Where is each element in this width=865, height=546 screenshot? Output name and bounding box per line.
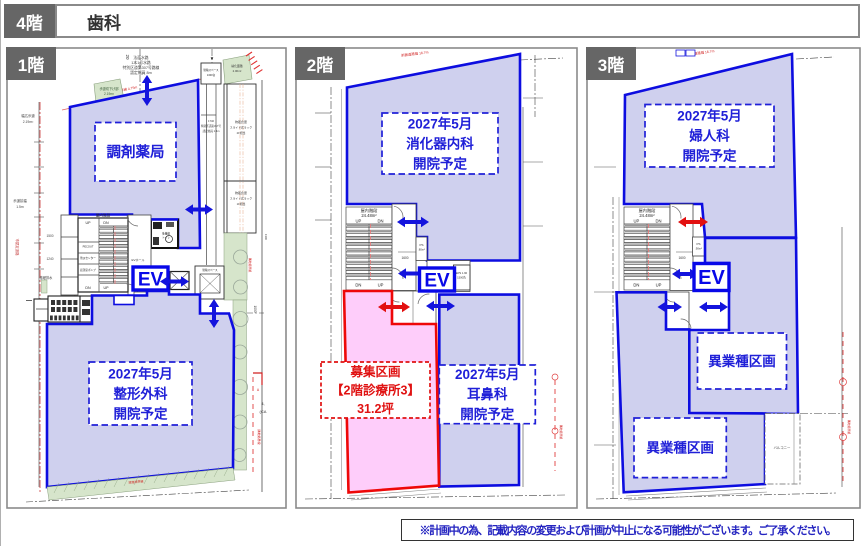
svg-text:調剤薬局: 調剤薬局	[107, 143, 165, 161]
svg-text:DN: DN	[655, 219, 661, 224]
svg-text:駐輪スペース: 駐輪スペース	[203, 68, 219, 72]
svg-text:法面水路: 法面水路	[133, 55, 148, 60]
svg-text:物販倉庫: 物販倉庫	[235, 190, 247, 195]
svg-text:1300台: 1300台	[207, 73, 216, 77]
svg-text:幅広歩道: 幅広歩道	[21, 113, 35, 118]
svg-text:UP: UP	[634, 219, 640, 224]
svg-text:2.19m²: 2.19m²	[23, 120, 34, 124]
svg-text:異業種区画: 異業種区画	[646, 440, 714, 456]
svg-text:EV: EV	[138, 269, 164, 290]
svg-text:隣地境界線: 隣地境界線	[559, 425, 564, 440]
svg-text:24.48m²: 24.48m²	[361, 213, 377, 218]
svg-text:UP: UP	[656, 283, 662, 288]
svg-text:防災センター: 防災センター	[80, 256, 96, 260]
svg-text:1300: 1300	[264, 234, 268, 241]
svg-text:歩道切下げ部: 歩道切下げ部	[99, 86, 119, 91]
svg-text:UP: UP	[86, 221, 92, 225]
svg-text:EVホール: EVホール	[131, 257, 144, 262]
svg-text:UP: UP	[104, 286, 110, 290]
svg-text:隣地境界線: 隣地境界線	[257, 429, 262, 444]
svg-text:スライド式ラック: スライド式ラック	[230, 126, 253, 130]
svg-text:UP: UP	[378, 283, 384, 288]
svg-text:1500: 1500	[46, 234, 53, 238]
svg-text:認定幅員 8m: 認定幅員 8m	[130, 70, 152, 75]
svg-text:▼: ▼	[210, 56, 214, 61]
svg-text:1500角: 1500角	[457, 276, 466, 280]
svg-text:DN: DN	[355, 283, 361, 288]
svg-text:2F相当: 2F相当	[237, 131, 246, 135]
svg-text:給湯室ポンプ: 給湯室ポンプ	[80, 268, 96, 272]
svg-text:1.5m: 1.5m	[16, 205, 24, 209]
svg-text:DN: DN	[85, 286, 91, 290]
svg-text:.80m²: .80m²	[418, 248, 425, 252]
svg-text:2027年5月整形外科開院予定: 2027年5月整形外科開院予定	[108, 365, 173, 421]
svg-text:4,: 4,	[261, 401, 264, 406]
svg-text:市認定道路: 市認定道路	[15, 239, 20, 257]
svg-text:1F相当: 1F相当	[237, 202, 246, 206]
svg-text:PECOUT: PECOUT	[83, 245, 94, 249]
svg-text:DN: DN	[377, 219, 383, 224]
svg-text:.90m²: .90m²	[695, 247, 702, 251]
svg-text:EPS 1.90: EPS 1.90	[456, 271, 468, 275]
svg-text:2027年5月消化器内科開院予定: 2027年5月消化器内科開院予定	[406, 115, 474, 171]
svg-text:異業種区画: 異業種区画	[708, 353, 776, 369]
svg-text:屋内階段: 屋内階段	[96, 213, 111, 218]
svg-text:20: 20	[125, 54, 130, 60]
svg-text:EV: EV	[698, 267, 725, 289]
svg-text:認定幅員 1.4m: 認定幅員 1.4m	[203, 129, 220, 133]
svg-text:PS: PS	[696, 242, 700, 246]
svg-text:1600: 1600	[401, 256, 408, 260]
svg-text:DN: DN	[103, 221, 109, 225]
svg-text:多機能: 多機能	[162, 232, 170, 236]
svg-text:PS: PS	[419, 243, 423, 247]
svg-text:バルコニー: バルコニー	[774, 446, 791, 450]
svg-text:24.48m²: 24.48m²	[639, 213, 655, 218]
svg-text:トイレ: トイレ	[162, 236, 170, 240]
svg-text:EV: EV	[424, 270, 450, 291]
svg-text:2.19m²: 2.19m²	[104, 92, 114, 96]
svg-text:特別区道第317号: 特別区道第317号	[201, 124, 221, 128]
svg-text:UP: UP	[356, 219, 362, 224]
svg-text:基礎排水: 基礎排水	[40, 275, 54, 280]
svg-text:駐輪スペース: 駐輪スペース	[202, 268, 218, 272]
svg-text:物販倉庫: 物販倉庫	[235, 119, 247, 124]
svg-text:隣地境界線: 隣地境界線	[847, 420, 852, 435]
svg-text:(CA: (CA	[260, 409, 267, 414]
svg-text:スライド式ラック: スライド式ラック	[230, 197, 253, 201]
svg-text:隣地境界線: 隣地境界線	[248, 258, 253, 273]
svg-text:1240: 1240	[46, 257, 53, 261]
svg-text:1000: 1000	[253, 305, 257, 312]
svg-text:1本1号水路: 1本1号水路	[131, 60, 151, 65]
svg-text:1740: 1740	[208, 119, 214, 123]
svg-text:2.00m²: 2.00m²	[233, 69, 242, 73]
svg-text:緑化面積: 緑化面積	[231, 64, 242, 68]
svg-text:1600: 1600	[678, 256, 685, 260]
svg-text:DN: DN	[633, 283, 639, 288]
svg-text:歩道拡幅: 歩道拡幅	[13, 198, 27, 203]
svg-text:特別区道第307号路線: 特別区道第307号路線	[123, 65, 160, 70]
